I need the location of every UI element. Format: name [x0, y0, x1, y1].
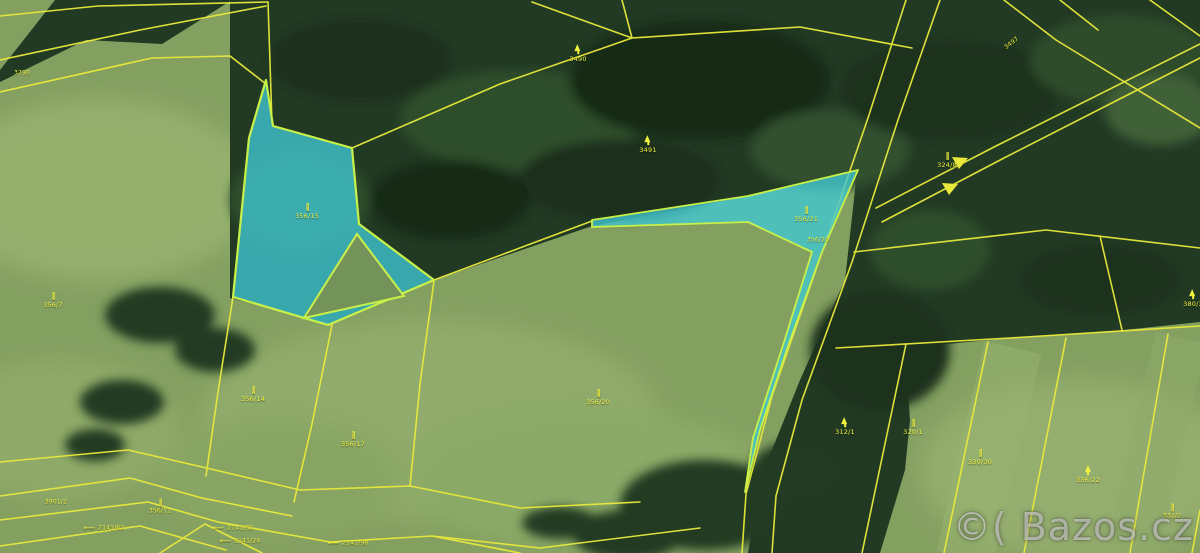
- bazos-watermark: ©( Bazos.cz: [953, 505, 1194, 549]
- aerial-cadastral-canvas: [0, 0, 1200, 553]
- aerial-backdrop: [0, 0, 1200, 553]
- map-viewport[interactable]: 379034903491‖356/15‖356/21356/20‖324/834…: [0, 0, 1200, 553]
